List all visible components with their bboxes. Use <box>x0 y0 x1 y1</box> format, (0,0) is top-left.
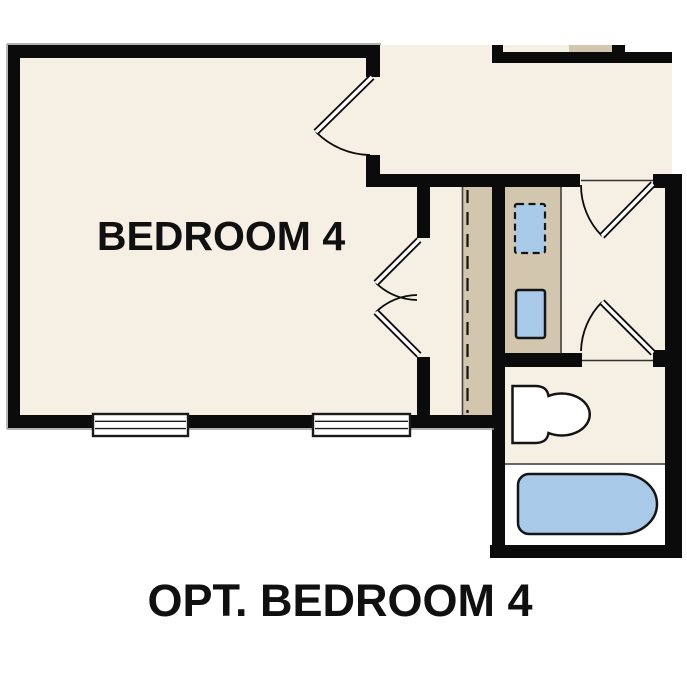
bedroom-window-1 <box>93 414 188 436</box>
top-edge-floor <box>503 45 569 53</box>
window-frame <box>313 414 410 436</box>
wall-segment <box>417 357 430 415</box>
wall-segment <box>492 45 503 52</box>
wall-segment <box>366 45 380 77</box>
wall-segment <box>492 174 505 558</box>
floor-plan: BEDROOM 4 OPT. BEDROOM 4 <box>0 0 687 687</box>
window-frame <box>93 414 188 436</box>
wall-segment <box>8 45 380 58</box>
floor-plan-page: BEDROOM 4 OPT. BEDROOM 4 <box>0 0 687 687</box>
washer-optional-fixture <box>515 204 545 253</box>
hall-floor <box>555 178 665 363</box>
wall-segment <box>490 545 682 558</box>
wall-segment <box>417 187 430 238</box>
upper-area-floor <box>370 45 492 185</box>
top-edge-closet-floor <box>569 45 612 53</box>
wall-segment <box>8 45 20 428</box>
bedroom-window-2 <box>313 414 410 436</box>
room-label: BEDROOM 4 <box>97 213 346 259</box>
plan-caption: OPT. BEDROOM 4 <box>147 575 532 626</box>
floor-areas <box>14 45 672 545</box>
upper-right-floor <box>492 52 672 185</box>
bathtub-fixture <box>518 474 657 534</box>
wall-segment <box>653 350 682 367</box>
wall-segment <box>366 174 580 187</box>
wall-segment <box>505 353 582 367</box>
wall-segment <box>492 52 672 63</box>
wall-segment <box>8 415 494 428</box>
wall-segment <box>612 45 625 62</box>
dryer-fixture <box>516 290 545 338</box>
